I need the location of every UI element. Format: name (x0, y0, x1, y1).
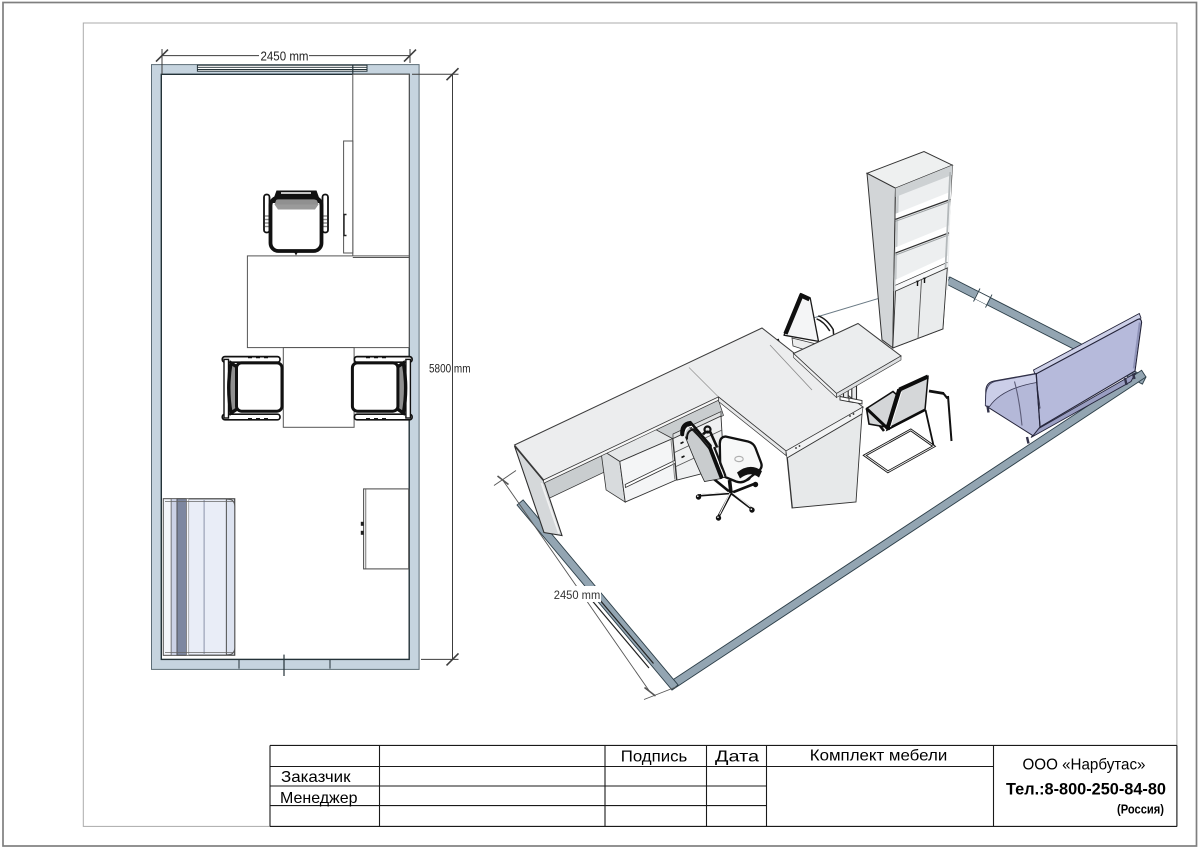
svg-text:Дата: Дата (715, 749, 759, 766)
svg-text:Комплект мебели: Комплект мебели (810, 748, 948, 765)
svg-text:2450 mm: 2450 mm (554, 588, 601, 602)
svg-text:Менеджер: Менеджер (280, 790, 358, 807)
svg-text:Тел.:8-800-250-84-80: Тел.:8-800-250-84-80 (1006, 781, 1166, 799)
svg-text:Подпись: Подпись (621, 749, 688, 766)
svg-text:Заказчик: Заказчик (281, 769, 352, 786)
svg-text:5800 mm: 5800 mm (429, 362, 471, 376)
svg-text:ООО «Нарбутас»: ООО «Нарбутас» (1023, 757, 1146, 774)
svg-text:2450 mm: 2450 mm (261, 49, 309, 63)
svg-text:(Россия): (Россия) (1117, 803, 1164, 817)
